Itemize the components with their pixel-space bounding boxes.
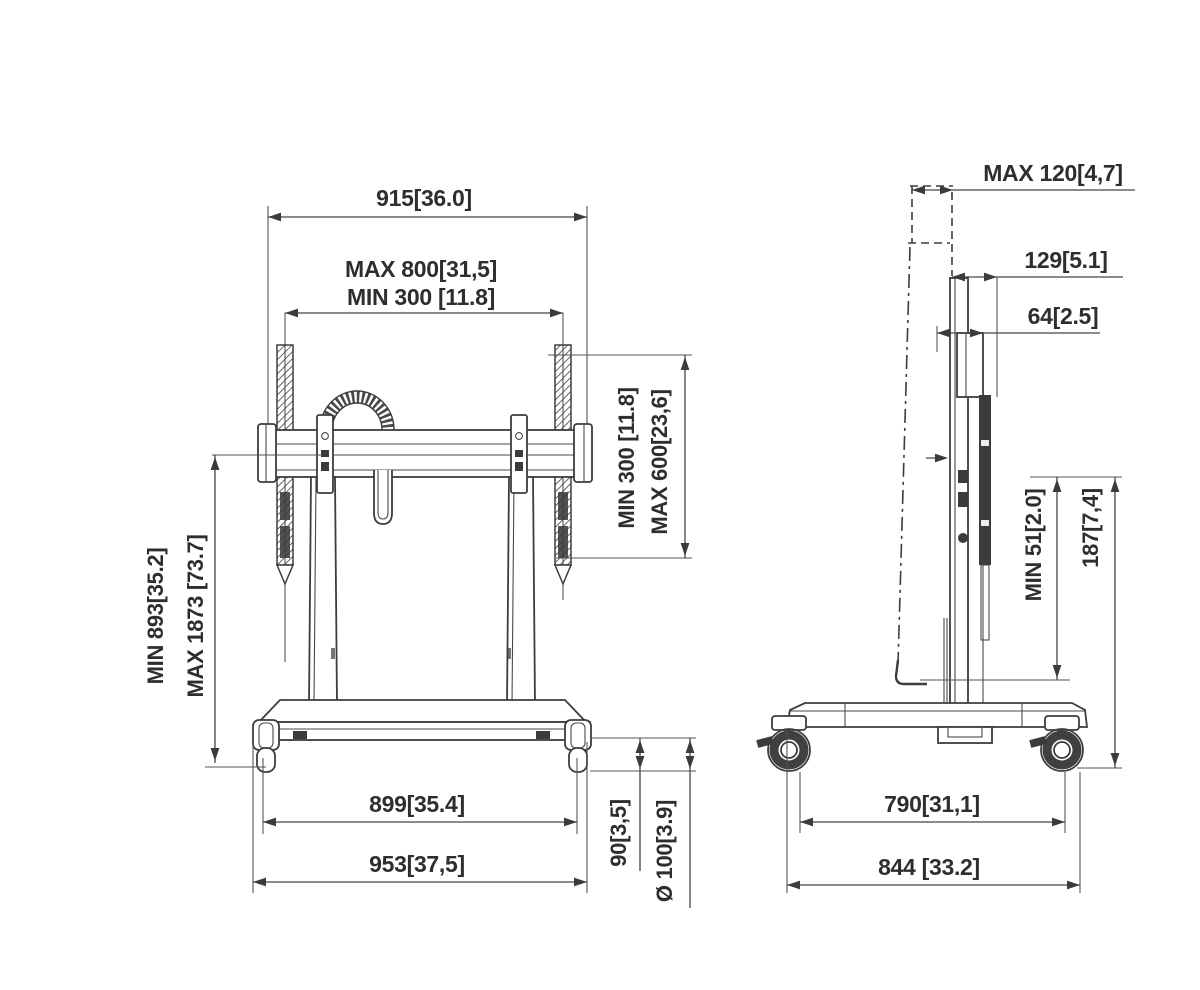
technical-drawing-page: 915[36.0] MAX 800[31,5] MIN 300 [11.8]: [0, 0, 1200, 990]
center-hook-slot: [374, 470, 392, 524]
front-dim-height-max-label: MAX 1873 [73.7]: [183, 534, 208, 697]
side-dim-tilt-depth: MAX 120[4,7]: [912, 160, 1135, 194]
front-dim-base-inner-width-label: 899[35.4]: [369, 791, 465, 817]
side-view: MAX 120[4,7] 129[5.1] 64[2.5]: [756, 160, 1135, 893]
front-dim-vesa-width-max-label: MAX 800[31,5]: [345, 256, 497, 282]
crossbar: [258, 424, 592, 482]
side-dim-wheelbase: 790[31,1]: [800, 772, 1065, 833]
front-dim-base-width-label: 953[37,5]: [369, 851, 465, 877]
front-dim-base-inner-width: 899[35.4]: [263, 758, 577, 834]
front-dim-vesa-width-min-label: MIN 300 [11.8]: [347, 284, 495, 310]
caster-side-left: [756, 716, 810, 771]
side-dim-base-height-label: 187[7,4]: [1078, 488, 1103, 568]
front-dim-base-width: 953[37,5]: [253, 742, 587, 893]
front-dim-height-min-label: MIN 893[35.2]: [143, 548, 168, 685]
crossbar-endcap-left: [258, 424, 276, 482]
front-dim-vesa-height-min-label: MIN 300 [11.8]: [614, 387, 639, 528]
front-dim-total-width-label: 915[36.0]: [376, 185, 472, 211]
side-dim-wheelbase-label: 790[31,1]: [884, 791, 980, 817]
front-dim-vesa-height-max-label: MAX 600[23,6]: [647, 389, 672, 534]
front-view: 915[36.0] MAX 800[31,5] MIN 300 [11.8]: [143, 185, 696, 908]
front-dim-caster: 90[3,5] Ø 100[3.9]: [590, 738, 696, 908]
display-tilted-line: [898, 247, 910, 664]
side-dim-column-depth-label: 64[2.5]: [1028, 303, 1099, 329]
side-dim-gap-min-label: MIN 51[2.0]: [1021, 489, 1046, 602]
front-dim-caster-clearance-label: 90[3,5]: [606, 799, 631, 867]
front-base: [255, 700, 590, 740]
dimension-drawing-svg: 915[36.0] MAX 800[31,5] MIN 300 [11.8]: [0, 0, 1200, 990]
display-phantom-lines: [896, 186, 953, 684]
side-dim-tilt-depth-label: MAX 120[4,7]: [983, 160, 1123, 186]
caster-front-left: [253, 720, 279, 772]
side-dim-base-depth-label: 844 [33.2]: [878, 854, 980, 880]
crossbar-endcap-right: [574, 424, 592, 482]
front-dim-caster-diameter-label: Ø 100[3.9]: [652, 800, 677, 902]
side-dim-top-depth-label: 129[5.1]: [1024, 247, 1107, 273]
